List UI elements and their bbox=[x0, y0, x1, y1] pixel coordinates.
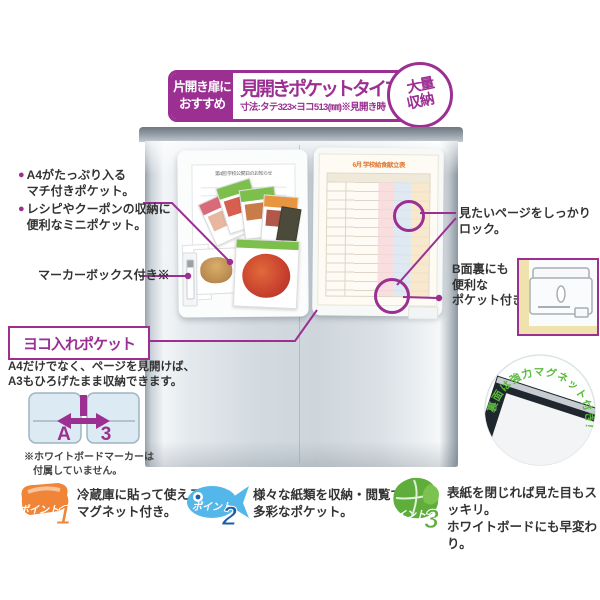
point3-line1: 表紙を閉じれば見た目もスッキリ。 bbox=[447, 485, 600, 519]
annotation-marker-box: マーカーボックス付き※ bbox=[38, 268, 170, 284]
yoko-desc-line1: A4だけでなく、ページを見開けば、 bbox=[8, 360, 195, 375]
point2-icon: ポイント 2 bbox=[186, 477, 250, 531]
point3-text: 表紙を閉じれば見た目もスッキリ。 ホワイトボードにも早変わり。 bbox=[447, 485, 600, 553]
disclaimer-line2: 付属していません。 bbox=[24, 465, 154, 479]
yoko-desc-line2: A3もひろげたまま収納できます。 bbox=[8, 375, 195, 390]
point3-line2: ホワイトボードにも早変わり。 bbox=[447, 519, 600, 553]
magnet-feature-image: 裏面は強力マグネット付き! bbox=[482, 352, 598, 468]
bullet-icon: ● bbox=[18, 168, 25, 199]
mini-pocket-line1: レシピやクーポンの収納に bbox=[27, 202, 171, 218]
point3-number: 3 bbox=[424, 504, 439, 532]
bside-pocket-drawing bbox=[525, 264, 595, 328]
point1-label: ポイント bbox=[19, 504, 59, 516]
annotation-page-lock: 見たいページをしっかりロック。 bbox=[459, 206, 600, 237]
point3-label: ポイント bbox=[386, 509, 426, 521]
bside-pocket-image bbox=[517, 258, 599, 336]
marker-disclaimer: ※ホワイトボードマーカーは 付属していません。 bbox=[24, 451, 154, 478]
callout-line-bside bbox=[403, 297, 438, 298]
point2-number: 2 bbox=[221, 501, 237, 531]
callout-dot bbox=[185, 273, 191, 279]
a4-pocket-line1: A4がたっぷり入る bbox=[27, 168, 135, 184]
bullet-icon: ● bbox=[18, 202, 25, 233]
callout-dot bbox=[227, 259, 233, 265]
callout-line-yoko-pocket bbox=[150, 310, 317, 341]
callout-line-lock-bottom bbox=[397, 218, 456, 285]
annotation-a4-pocket: ● A4がたっぷり入る マチ付きポケット。 bbox=[18, 168, 134, 199]
a3-letter-a: A bbox=[57, 424, 71, 445]
point1-line2: マグネット付き。 bbox=[77, 504, 201, 521]
point1-number: 1 bbox=[56, 500, 71, 530]
yoko-pocket-description: A4だけでなく、ページを見開けば、 A3もひろげたまま収納できます。 bbox=[8, 360, 195, 390]
point1-text: 冷蔵庫に貼って使える マグネット付き。 bbox=[77, 487, 201, 521]
point3-icon: ポイント 3 bbox=[384, 474, 444, 532]
point1-icon: ポイント 1 bbox=[14, 478, 74, 530]
a3-spread-diagram: A 3 bbox=[26, 390, 140, 448]
annotation-mini-pocket: ● レシピやクーポンの収納に 便利なミニポケット。 bbox=[18, 202, 171, 233]
yoko-pocket-label: ヨコ入れポケット bbox=[8, 326, 150, 360]
mini-pocket-line2: 便利なミニポケット。 bbox=[27, 218, 171, 234]
callout-dot bbox=[436, 295, 442, 301]
point1-line1: 冷蔵庫に貼って使える bbox=[77, 487, 201, 504]
a3-letter-3: 3 bbox=[101, 424, 112, 445]
disclaimer-line1: ※ホワイトボードマーカーは bbox=[24, 451, 154, 465]
product-infographic: 片開き扉に おすすめ 見開きポケットタイプ 寸法:タテ323×ヨコ513(㎜)※… bbox=[0, 0, 600, 600]
a4-pocket-line2: マチ付きポケット。 bbox=[27, 184, 135, 200]
